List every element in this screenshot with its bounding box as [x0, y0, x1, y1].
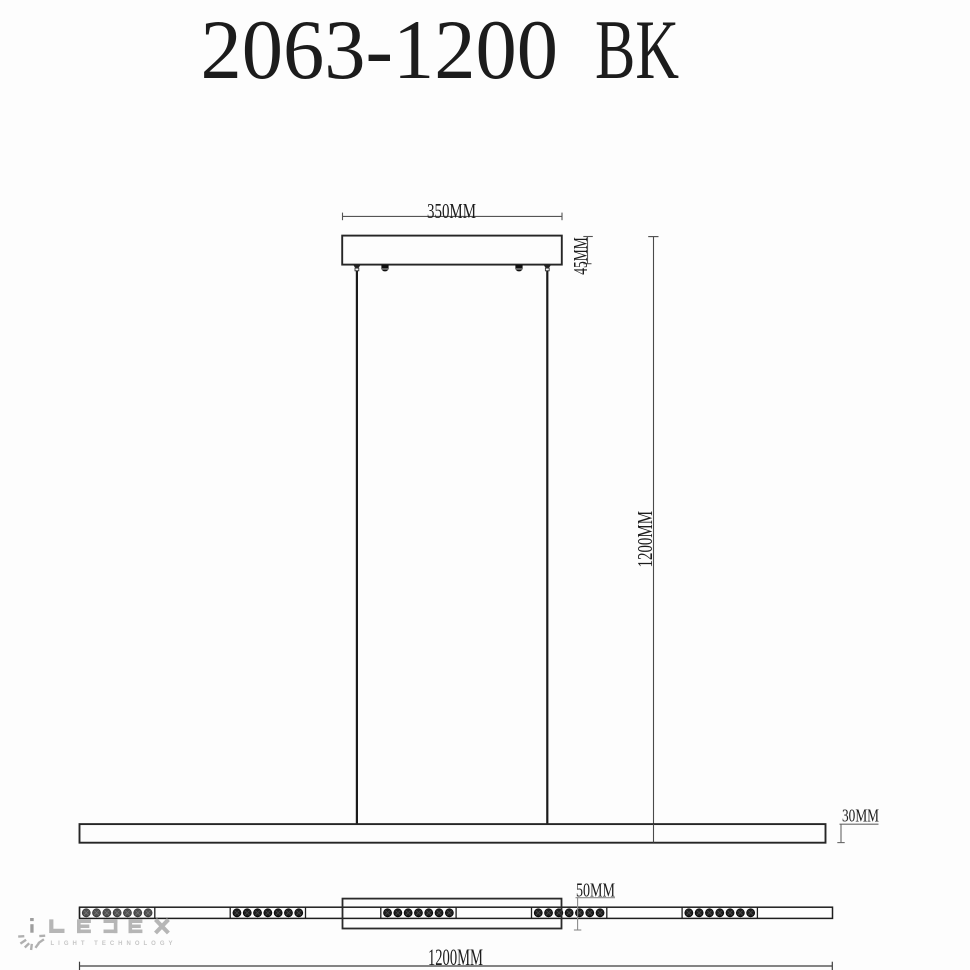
- svg-text:1200MM: 1200MM: [633, 511, 657, 568]
- svg-text:1200MM: 1200MM: [428, 945, 483, 970]
- svg-text:LIGHT TECHNOLOGY: LIGHT TECHNOLOGY: [51, 941, 177, 947]
- svg-text:30MM: 30MM: [842, 806, 879, 826]
- svg-text:50MM: 50MM: [576, 880, 615, 902]
- svg-text:BK: BK: [595, 3, 679, 97]
- svg-text:2063-1200: 2063-1200: [201, 3, 559, 97]
- svg-text:350MM: 350MM: [427, 199, 476, 223]
- svg-text:45MM: 45MM: [570, 237, 592, 275]
